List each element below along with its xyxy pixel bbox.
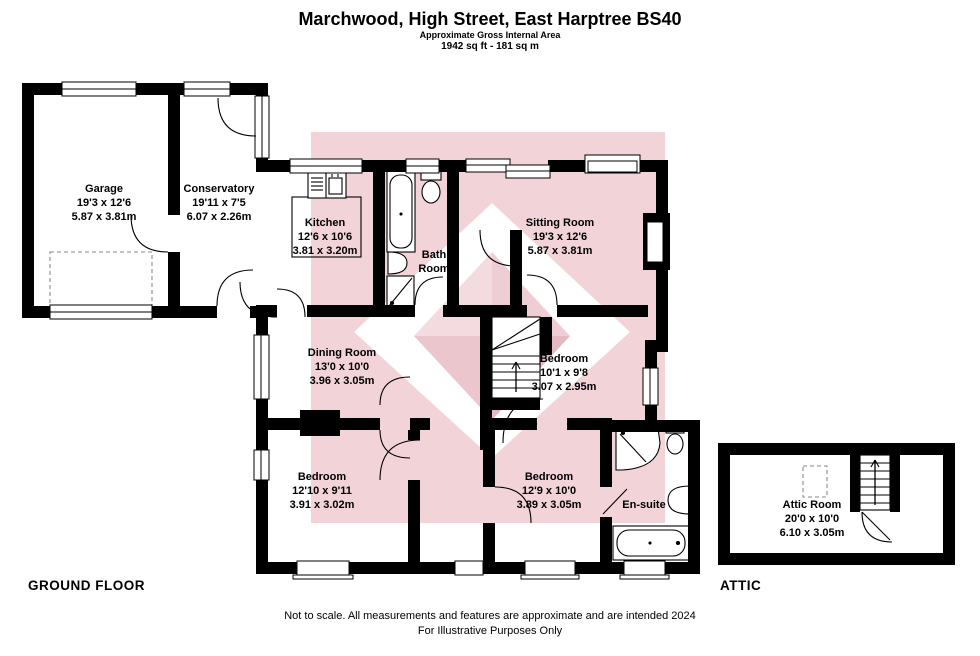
room-label-bedroom-mid: Bedroom 10'1 x 9'8 3.07 x 2.95m: [499, 352, 629, 394]
room-label-attic-room: Attic Room 20'0 x 10'0 6.10 x 3.05m: [747, 498, 877, 540]
disclaimer-line2: For Illustrative Purposes Only: [0, 625, 980, 637]
bedroom-mid-window: [643, 368, 658, 405]
ensuite-bathtub: [613, 526, 689, 560]
room-label-kitchen: Kitchen 12'6 x 10'6 3.81 x 3.20m: [260, 216, 390, 258]
attic-hatch: [803, 466, 827, 497]
page-subtitle: Approximate Gross Internal Area: [0, 30, 980, 40]
gross-internal-area: 1942 sq ft - 181 sq m: [0, 41, 980, 52]
room-label-bedroom-left: Bedroom 12'10 x 9'11 3.91 x 3.02m: [257, 470, 387, 512]
kitchen-window: [290, 159, 362, 173]
conservatory-side-window: [255, 96, 269, 158]
ensuite-window: [620, 561, 669, 579]
bathtub: [387, 171, 415, 252]
disclaimer-line1: Not to scale. All measurements and featu…: [0, 610, 980, 622]
room-label-sitting-room: Sitting Room 19'3 x 12'6 5.87 x 3.81m: [495, 216, 625, 258]
door-conservatory-rear: [217, 270, 253, 306]
floor-plan-drawing: [0, 0, 980, 656]
door-conservatory-house: [218, 98, 256, 136]
door-hall-b: [277, 289, 305, 317]
room-label-bathroom: Bath Room: [411, 248, 457, 276]
rear-door: [455, 561, 483, 575]
hall-window-a: [466, 159, 510, 172]
garage-car-space: [50, 252, 152, 305]
bedroom-left-window: [293, 561, 353, 579]
sitting-room-recess-window: [647, 222, 663, 262]
toilet: [421, 171, 441, 203]
bathroom-window: [406, 159, 439, 173]
shower: [387, 276, 414, 308]
room-label-dining-room: Dining Room 13'0 x 10'0 3.96 x 3.05m: [277, 346, 407, 388]
hall-window-b: [506, 165, 550, 178]
dining-window: [254, 335, 269, 399]
kitchen-sink: [308, 172, 346, 198]
sitting-room-window: [585, 155, 640, 173]
ground-floor-label: GROUND FLOOR: [28, 578, 145, 593]
room-label-ensuite: En-suite: [579, 498, 709, 512]
bedroom-bottom-window: [521, 561, 579, 579]
conservatory-window: [184, 82, 230, 96]
page-title: Marchwood, High Street, East Harptree BS…: [0, 9, 980, 30]
room-label-garage: Garage 19'3 x 12'6 5.87 x 3.81m: [39, 182, 169, 224]
garage-window: [62, 82, 136, 96]
attic-label: ATTIC: [720, 578, 761, 593]
garage-door: [50, 305, 152, 319]
floorplan-page: Marchwood, High Street, East Harptree BS…: [0, 0, 980, 656]
